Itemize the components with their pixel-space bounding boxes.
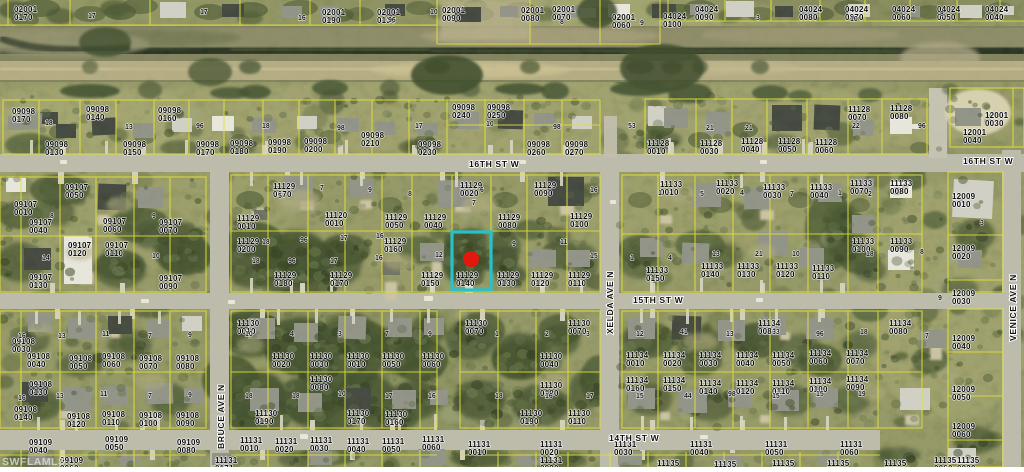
svg-text:98: 98 [553, 124, 561, 131]
svg-text:16: 16 [375, 255, 383, 262]
svg-text:16TH ST W: 16TH ST W [963, 156, 1014, 166]
svg-text:1: 1 [838, 190, 842, 197]
svg-text:21: 21 [706, 125, 714, 132]
svg-text:5: 5 [278, 193, 282, 200]
svg-text:7: 7 [320, 185, 324, 192]
svg-text:22: 22 [852, 123, 860, 130]
svg-text:21: 21 [745, 125, 753, 132]
svg-text:96: 96 [918, 123, 926, 130]
svg-text:14TH ST W: 14TH ST W [609, 433, 660, 443]
svg-text:111350030: 111350030 [772, 459, 795, 467]
svg-text:16: 16 [428, 393, 436, 400]
svg-text:9: 9 [152, 213, 156, 220]
svg-text:9: 9 [938, 295, 942, 302]
svg-text:16TH ST W: 16TH ST W [469, 159, 520, 169]
svg-text:9: 9 [188, 332, 192, 339]
svg-text:8: 8 [50, 213, 54, 220]
svg-text:16: 16 [298, 15, 306, 22]
svg-text:7: 7 [148, 333, 152, 340]
svg-text:17: 17 [200, 9, 208, 16]
svg-text:13: 13 [58, 333, 66, 340]
svg-text:10: 10 [338, 391, 346, 398]
svg-text:7: 7 [790, 191, 794, 198]
svg-text:18: 18 [860, 329, 868, 336]
svg-text:2: 2 [868, 191, 872, 198]
svg-text:19: 19 [858, 391, 866, 398]
svg-text:9: 9 [188, 392, 192, 399]
svg-text:13: 13 [125, 124, 133, 131]
svg-text:13: 13 [712, 251, 720, 258]
svg-text:4: 4 [290, 331, 294, 338]
svg-text:111350040: 111350040 [827, 459, 850, 467]
svg-text:SWFLAMLS: SWFLAMLS [2, 456, 66, 467]
svg-text:XELDA AVE N: XELDA AVE N [605, 271, 615, 334]
svg-text:4: 4 [740, 190, 744, 197]
svg-text:17: 17 [385, 393, 393, 400]
svg-text:1: 1 [630, 255, 634, 262]
svg-text:17: 17 [415, 123, 423, 130]
svg-text:11: 11 [100, 391, 108, 398]
svg-text:15: 15 [772, 393, 780, 400]
svg-text:96: 96 [196, 123, 204, 130]
svg-text:5: 5 [700, 191, 704, 198]
svg-text:33: 33 [772, 329, 780, 336]
svg-text:9: 9 [428, 331, 432, 338]
svg-text:18: 18 [45, 120, 53, 127]
svg-text:3: 3 [586, 331, 590, 338]
svg-text:1: 1 [658, 190, 662, 197]
svg-text:7: 7 [925, 333, 929, 340]
svg-text:3: 3 [980, 220, 984, 227]
svg-text:9: 9 [640, 20, 644, 27]
svg-text:17: 17 [586, 393, 594, 400]
svg-text:111350050: 111350050 [884, 459, 907, 467]
svg-text:13: 13 [726, 331, 734, 338]
svg-text:16: 16 [18, 333, 26, 340]
svg-text:17: 17 [88, 13, 96, 20]
svg-text:18: 18 [495, 393, 503, 400]
svg-text:15: 15 [816, 391, 824, 398]
svg-text:6: 6 [480, 187, 484, 194]
svg-text:2: 2 [545, 331, 549, 338]
svg-text:7: 7 [472, 200, 476, 207]
svg-text:16: 16 [590, 187, 598, 194]
svg-text:98: 98 [728, 391, 736, 398]
svg-text:21: 21 [755, 251, 763, 258]
svg-text:BRUCE AVE N: BRUCE AVE N [216, 384, 226, 449]
svg-text:15: 15 [590, 253, 598, 260]
svg-text:16: 16 [18, 395, 26, 402]
svg-text:3: 3 [338, 331, 342, 338]
svg-text:18: 18 [252, 258, 260, 265]
svg-text:17: 17 [330, 258, 338, 265]
svg-text:10: 10 [850, 16, 858, 23]
svg-text:18: 18 [262, 239, 270, 246]
svg-text:1: 1 [495, 331, 499, 338]
svg-text:111350020: 111350020 [714, 460, 737, 467]
svg-text:44: 44 [684, 393, 692, 400]
svg-text:111350010: 111350010 [657, 459, 680, 467]
svg-text:10: 10 [486, 121, 494, 128]
svg-text:18: 18 [262, 123, 270, 130]
svg-text:16: 16 [545, 393, 553, 400]
svg-text:11: 11 [560, 239, 568, 246]
svg-text:15: 15 [636, 393, 644, 400]
svg-text:96: 96 [816, 331, 824, 338]
svg-text:41: 41 [680, 329, 688, 336]
svg-text:11: 11 [102, 331, 110, 338]
svg-text:10: 10 [152, 253, 160, 260]
svg-text:13: 13 [56, 393, 64, 400]
svg-text:10: 10 [792, 251, 800, 258]
svg-text:4: 4 [668, 255, 672, 262]
svg-text:18: 18 [245, 393, 253, 400]
svg-text:8: 8 [408, 191, 412, 198]
svg-text:VENICE AVE N: VENICE AVE N [1008, 274, 1018, 341]
svg-text:7: 7 [385, 331, 389, 338]
svg-text:96: 96 [288, 258, 296, 265]
svg-text:10: 10 [430, 9, 438, 16]
svg-text:8: 8 [940, 11, 944, 18]
svg-text:15TH ST W: 15TH ST W [633, 295, 684, 305]
svg-text:96: 96 [388, 17, 396, 24]
svg-text:53: 53 [628, 123, 636, 130]
svg-text:8: 8 [560, 19, 564, 26]
svg-text:10: 10 [245, 331, 253, 338]
svg-text:17: 17 [340, 235, 348, 242]
svg-text:12: 12 [435, 252, 443, 259]
svg-text:18: 18 [292, 393, 300, 400]
svg-text:98: 98 [337, 125, 345, 132]
svg-text:14: 14 [42, 255, 50, 262]
svg-text:12: 12 [636, 331, 644, 338]
svg-text:3: 3 [756, 15, 760, 22]
svg-text:16: 16 [376, 233, 384, 240]
svg-text:8: 8 [920, 249, 924, 256]
svg-text:18: 18 [866, 251, 874, 258]
svg-text:9: 9 [368, 187, 372, 194]
svg-text:96: 96 [300, 237, 308, 244]
svg-text:9: 9 [512, 241, 516, 248]
svg-text:7: 7 [148, 393, 152, 400]
